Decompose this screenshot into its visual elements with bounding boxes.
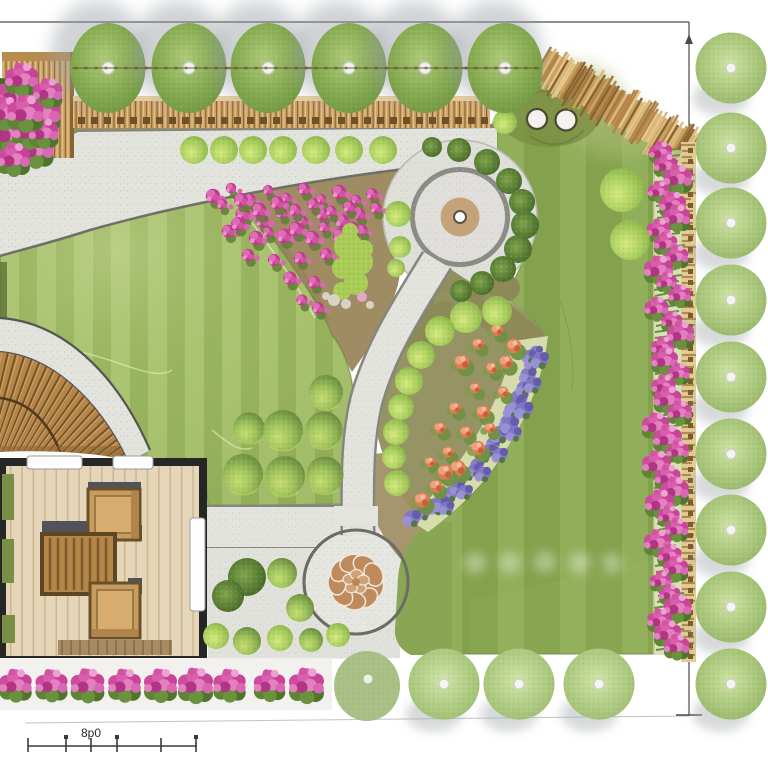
svg-text:8p0: 8p0 [81,726,101,740]
